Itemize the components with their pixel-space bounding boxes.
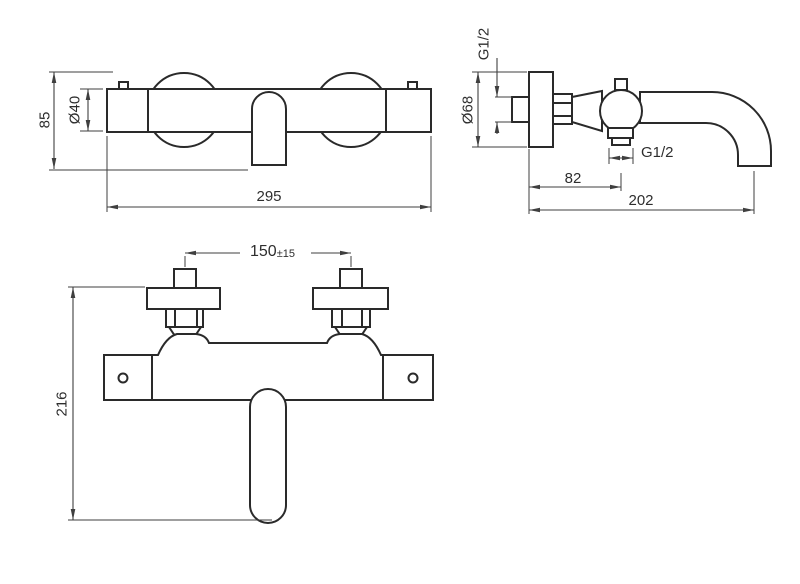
dim-label-bar-diameter: Ø40 (66, 96, 83, 124)
side-view: G1/2 Ø68 G1/2 82 202 (459, 28, 771, 214)
right-stop-button (408, 82, 417, 89)
dim-value: 150 (250, 243, 277, 260)
connection-nut-side (553, 94, 572, 124)
technical-drawing-page: 85 Ø40 295 (0, 0, 800, 584)
dimension-bar-diameter: Ø40 (66, 89, 103, 131)
dim-label-height: 85 (36, 112, 53, 129)
mixer-dimension-drawing: 85 Ø40 295 (0, 0, 800, 584)
dimension-inlet-thread: G1/2 (475, 28, 512, 134)
left-screw-hole (119, 374, 128, 383)
right-screw-hole (409, 374, 418, 383)
dimension-outlet-offset: 82 (529, 170, 621, 191)
left-wall-flange (147, 288, 220, 309)
outlet-thread-stub (612, 138, 630, 145)
dim-label-width: 295 (256, 188, 281, 205)
dim-label-outlet-thread: G1/2 (641, 144, 674, 161)
dim-tolerance: ±15 (277, 248, 295, 260)
knob-button (615, 79, 627, 90)
right-inlet-stub (340, 269, 362, 288)
outlet-collar (608, 128, 633, 138)
spout-plan (250, 389, 286, 523)
knob-side (600, 90, 642, 132)
body-cone (572, 91, 602, 131)
dimension-overall-height: 216 (53, 287, 272, 520)
left-inlet-stub (174, 269, 196, 288)
dim-label-reach: 202 (628, 192, 653, 209)
front-view: 85 Ø40 295 (36, 72, 431, 212)
spout-front (252, 92, 286, 165)
left-stop-button (119, 82, 128, 89)
dimension-inlet-spacing: 150±15 (185, 243, 351, 267)
dimension-outlet-thread: G1/2 (609, 144, 674, 164)
dim-label-outlet-offset: 82 (565, 170, 582, 187)
dim-label-flange-diameter: Ø68 (459, 96, 476, 124)
dim-label-inlet-thread: G1/2 (475, 28, 492, 61)
dim-label-overall-height: 216 (53, 391, 70, 416)
right-union-nut (332, 309, 370, 327)
plan-view: 150±15 216 (53, 243, 433, 523)
inlet-stub-side (512, 97, 529, 122)
dim-label-inlet-spacing: 150±15 (250, 243, 295, 260)
right-wall-flange (313, 288, 388, 309)
wall-flange-side (529, 72, 553, 147)
